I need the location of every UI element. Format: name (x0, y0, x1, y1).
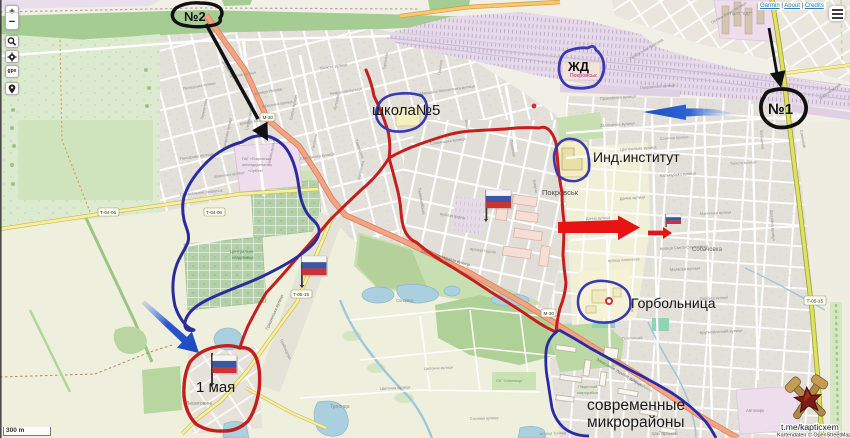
svg-text:Kartendaten © OpenStreetMap: Kartendaten © OpenStreetMap (777, 432, 850, 438)
svg-text:М-30: М-30 (544, 311, 555, 316)
svg-text:мікрорайон: мікрорайон (577, 390, 598, 395)
svg-text:Автопарк: Автопарк (746, 408, 764, 413)
svg-text:Шахтарський: Шахтарський (652, 431, 678, 436)
svg-text:ПрАТ "КДТ": ПрАТ "КДТ" (730, 11, 753, 16)
svg-text:Сонцівка: Сонцівка (396, 298, 414, 303)
svg-text:Т-04-06: Т-04-06 (100, 210, 117, 215)
svg-text:автопідприємство: автопідприємство (242, 163, 272, 167)
svg-text:М-30: М-30 (263, 115, 274, 120)
svg-text:Південний: Південний (578, 384, 597, 389)
svg-text:СК "Олімпієць": СК "Олімпієць" (496, 378, 524, 383)
svg-text:кладовище: кладовище (232, 255, 254, 260)
svg-text:Центральне: Центральне (230, 249, 254, 254)
svg-text:Т-04-06: Т-04-06 (206, 210, 223, 215)
svg-text:Т-05-15: Т-05-15 (807, 299, 824, 305)
svg-text:№1: №1 (768, 101, 793, 118)
svg-text:«Орбіта»: «Орбіта» (248, 169, 263, 173)
svg-text:№2: №2 (184, 9, 206, 24)
svg-text:Троянда: Троянда (330, 404, 350, 410)
svg-text:ПАТ «Покровське: ПАТ «Покровське (242, 157, 271, 161)
svg-text:Собачовка: Собачовка (692, 247, 723, 253)
svg-text:t.me/kapticxem: t.me/kapticxem (781, 422, 839, 432)
svg-text:1 мая: 1 мая (196, 379, 235, 396)
svg-text:Горбольница: Горбольница (631, 295, 716, 311)
svg-text:Т-05-15: Т-05-15 (293, 292, 310, 297)
svg-text:Инд.институт: Инд.институт (593, 149, 680, 165)
svg-text:современные: современные (587, 397, 685, 414)
svg-text:ЖД: ЖД (567, 59, 590, 74)
svg-text:микрорайоны: микрорайоны (587, 414, 685, 431)
svg-text:школа№5: школа№5 (372, 102, 440, 119)
svg-text:Леонтовичі: Леонтовичі (186, 401, 212, 407)
